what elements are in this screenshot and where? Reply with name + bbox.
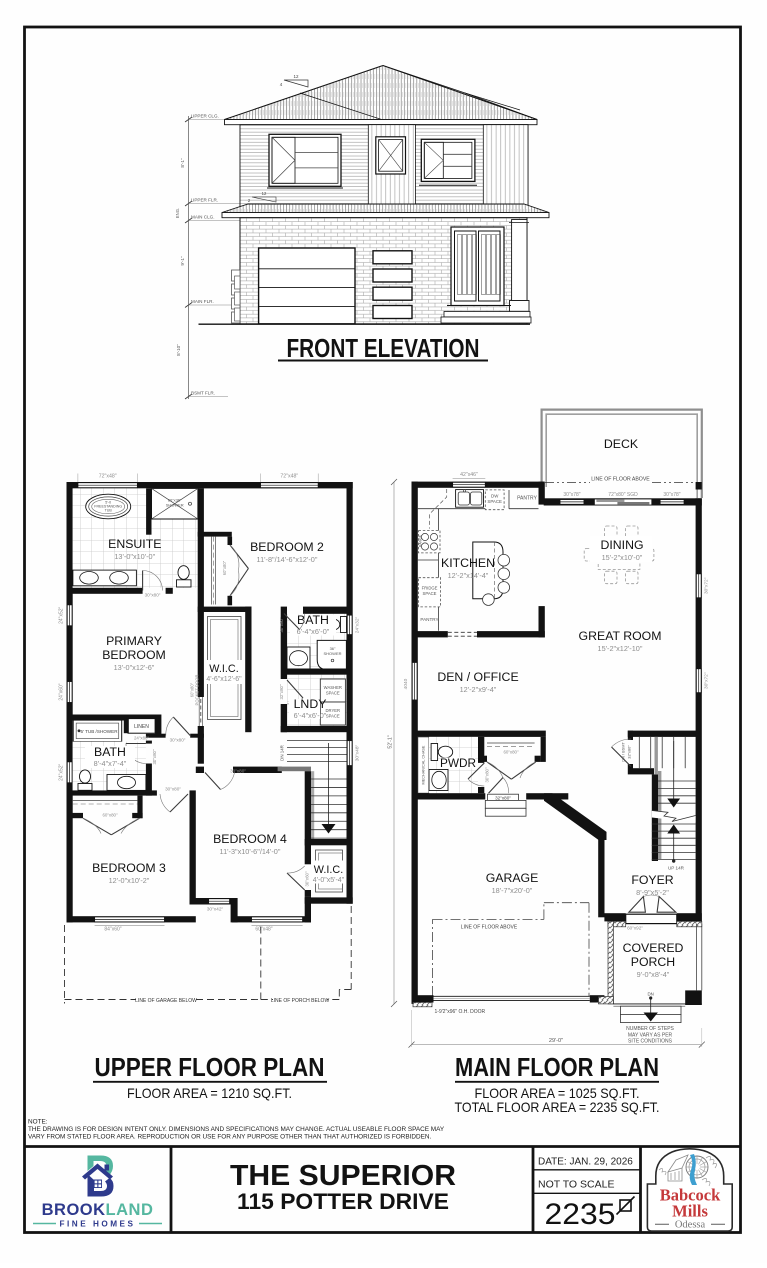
svg-text:8'-9"x5'-2": 8'-9"x5'-2" — [636, 888, 669, 897]
svg-text:BATH: BATH — [94, 745, 126, 759]
svg-text:THE DRAWING IS FOR DESIGN INTE: THE DRAWING IS FOR DESIGN INTENT ONLY. D… — [28, 1126, 445, 1133]
svg-text:MECHANICAL CHASE: MECHANICAL CHASE — [422, 745, 426, 784]
svg-text:11'-8"/14'-6"x12'-0": 11'-8"/14'-6"x12'-0" — [257, 555, 318, 564]
svg-text:SHOWER: SHOWER — [324, 651, 342, 656]
svg-text:12: 12 — [293, 74, 299, 79]
svg-text:FRONT ELEVATION: FRONT ELEVATION — [287, 335, 480, 363]
svg-text:12'-0"x10'-2": 12'-0"x10'-2" — [109, 876, 150, 885]
svg-text:8'-1": 8'-1" — [180, 158, 185, 168]
svg-text:NUMBER OF STEPS: NUMBER OF STEPS — [626, 1026, 674, 1032]
svg-text:MAIN FLR.: MAIN FLR. — [191, 299, 214, 304]
svg-text:60"x80": 60"x80" — [102, 813, 118, 818]
svg-text:15'-2"x12'-10": 15'-2"x12'-10" — [598, 644, 643, 653]
svg-text:MAIN CLG.: MAIN CLG. — [191, 215, 214, 220]
svg-text:COVERED: COVERED — [623, 941, 684, 955]
svg-text:DN: DN — [648, 992, 654, 997]
svg-text:30"x48": 30"x48" — [355, 744, 361, 761]
svg-text:6'-4"x6'-0": 6'-4"x6'-0" — [297, 627, 330, 636]
svg-text:W.I.C.: W.I.C. — [314, 864, 343, 876]
svg-text:18'-7"x20'-0": 18'-7"x20'-0" — [492, 886, 533, 895]
svg-text:MAIN FLOOR PLAN: MAIN FLOOR PLAN — [455, 1052, 659, 1082]
svg-text:DW: DW — [491, 494, 499, 499]
svg-text:60"x48": 60"x48" — [255, 927, 272, 933]
svg-text:SPACE: SPACE — [423, 591, 437, 596]
svg-text:24"x52": 24"x52" — [59, 606, 65, 623]
svg-text:30"x78": 30"x78" — [663, 492, 680, 498]
svg-text:8'-10": 8'-10" — [176, 344, 181, 356]
svg-text:FLOOR AREA = 1210 SQ.FT.: FLOOR AREA = 1210 SQ.FT. — [127, 1085, 292, 1101]
svg-text:SPACE: SPACE — [326, 714, 340, 719]
svg-text:24"x32": 24"x32" — [355, 616, 361, 633]
svg-text:BEDROOM 3: BEDROOM 3 — [92, 861, 166, 875]
svg-text:PORCH: PORCH — [631, 955, 675, 969]
svg-text:PANTRY: PANTRY — [420, 617, 438, 622]
svg-text:LNDY: LNDY — [294, 697, 327, 711]
svg-text:1-9'2"x96" O.H. DOOR: 1-9'2"x96" O.H. DOOR — [435, 1009, 486, 1015]
svg-text:6'-4"x6'-0": 6'-4"x6'-0" — [294, 711, 327, 720]
svg-text:PANTRY: PANTRY — [517, 496, 537, 502]
svg-text:115 POTTER DRIVE: 115 POTTER DRIVE — [237, 1189, 449, 1214]
svg-text:DINING: DINING — [600, 538, 643, 552]
svg-text:WASHER: WASHER — [324, 685, 342, 690]
svg-text:30"x80": 30"x80" — [170, 738, 186, 743]
svg-text:ENG.: ENG. — [175, 208, 180, 218]
svg-text:UPPER CLG.: UPPER CLG. — [191, 114, 219, 119]
svg-text:W.I.C.: W.I.C. — [209, 663, 238, 675]
svg-text:PRIMARY: PRIMARY — [106, 634, 162, 648]
svg-text:30"x78": 30"x78" — [563, 492, 580, 498]
svg-text:42"x46": 42"x46" — [460, 472, 478, 478]
svg-text:LINE OF FLOOR ABOVE: LINE OF FLOOR ABOVE — [591, 477, 650, 483]
svg-text:4'-6"x12'-6": 4'-6"x12'-6" — [206, 676, 242, 683]
svg-text:9'-0"x8'-4": 9'-0"x8'-4" — [637, 970, 670, 979]
svg-text:13'-0"x12'-6": 13'-0"x12'-6" — [114, 663, 155, 672]
svg-text:52'-1": 52'-1" — [388, 735, 394, 748]
svg-text:15'-2"x10'-0": 15'-2"x10'-0" — [602, 553, 643, 562]
svg-text:BEDROOM: BEDROOM — [102, 648, 166, 662]
svg-text:BEDROOM 4: BEDROOM 4 — [213, 832, 287, 846]
svg-text:BROOKLAND: BROOKLAND — [42, 1201, 154, 1219]
svg-text:32"x80": 32"x80" — [495, 795, 511, 800]
svg-text:12: 12 — [262, 191, 267, 196]
svg-text:32"x80": 32"x80" — [627, 745, 632, 759]
svg-text:GREAT ROOM: GREAT ROOM — [579, 629, 662, 643]
svg-text:DECK: DECK — [604, 437, 639, 451]
svg-text:VARY FROM STATED FLOOR AREA. R: VARY FROM STATED FLOOR AREA. REPRODUCTIO… — [28, 1134, 431, 1141]
svg-text:NOT TO SCALE: NOT TO SCALE — [538, 1179, 614, 1191]
svg-text:BEDROOM 2: BEDROOM 2 — [250, 540, 324, 554]
svg-text:LINE OF GARAGE BELOW: LINE OF GARAGE BELOW — [135, 998, 197, 1004]
svg-text:2235: 2235 — [545, 1198, 616, 1231]
svg-text:FRIDGE: FRIDGE — [422, 586, 438, 591]
svg-text:8'-4"x7'-4": 8'-4"x7'-4" — [94, 759, 127, 768]
svg-text:72"x48": 72"x48" — [99, 474, 117, 480]
svg-text:PWDR: PWDR — [440, 756, 476, 770]
svg-text:11'-3"x10'-6"/14'-0": 11'-3"x10'-6"/14'-0" — [220, 847, 281, 856]
svg-text:FOYER: FOYER — [631, 873, 673, 887]
svg-text:84"x60": 84"x60" — [104, 927, 121, 933]
svg-text:Odessa: Odessa — [675, 1220, 706, 1231]
svg-text:DN 14R: DN 14R — [280, 745, 285, 761]
svg-text:30"x80": 30"x80" — [152, 749, 157, 765]
svg-text:5' TUB /SHOWER: 5' TUB /SHOWER — [80, 729, 118, 734]
svg-text:UP 14R: UP 14R — [668, 866, 685, 871]
svg-text:9'-1": 9'-1" — [180, 256, 185, 266]
svg-text:LINE OF FLOOR ABOVE: LINE OF FLOOR ABOVE — [461, 925, 518, 931]
svg-text:LINE OF PORCH BELOW: LINE OF PORCH BELOW — [271, 998, 330, 1004]
svg-text:SPACE: SPACE — [487, 499, 502, 504]
svg-text:72"x80" SGD: 72"x80" SGD — [608, 492, 638, 498]
svg-text:30"x80": 30"x80" — [230, 769, 246, 774]
svg-text:24"x52": 24"x52" — [59, 763, 65, 780]
svg-text:29'-0": 29'-0" — [549, 1038, 563, 1044]
svg-text:60"x80": 60"x80" — [503, 750, 519, 755]
svg-text:BSMT FLR.: BSMT FLR. — [191, 391, 215, 396]
svg-text:DRYER: DRYER — [326, 708, 341, 713]
svg-text:72"x48": 72"x48" — [280, 474, 298, 480]
svg-text:MAY VARY AS PER: MAY VARY AS PER — [628, 1032, 673, 1038]
svg-text:4040: 4040 — [403, 678, 409, 689]
svg-text:SITE CONDITIONS: SITE CONDITIONS — [628, 1039, 673, 1045]
svg-text:60"x80": 60"x80" — [222, 560, 227, 575]
svg-text:RANGE: RANGE — [419, 534, 423, 547]
svg-text:POCKET DOOR: POCKET DOOR — [195, 675, 200, 706]
svg-text:30"x80": 30"x80" — [165, 787, 181, 792]
svg-text:30"x60": 30"x60" — [305, 871, 310, 887]
svg-text:30"x80": 30"x80" — [485, 767, 490, 783]
svg-text:THE SUPERIOR: THE SUPERIOR — [230, 1160, 456, 1192]
svg-text:NOTE:: NOTE: — [28, 1119, 48, 1126]
svg-text:TUB: TUB — [105, 509, 113, 513]
svg-text:ENSUITE: ENSUITE — [108, 537, 161, 551]
svg-text:BATH: BATH — [297, 613, 329, 627]
svg-text:TOTAL FLOOR AREA = 2235 SQ.FT.: TOTAL FLOOR AREA = 2235 SQ.FT. — [455, 1099, 660, 1115]
svg-text:DEN / OFFICE: DEN / OFFICE — [437, 670, 518, 684]
svg-text:13'-0"x10'-0": 13'-0"x10'-0" — [114, 552, 155, 561]
svg-text:12'-2"x14'-4": 12'-2"x14'-4" — [448, 571, 489, 580]
svg-text:SHOWER: SHOWER — [166, 503, 184, 508]
svg-text:30"x72": 30"x72" — [704, 577, 710, 594]
svg-text:Mills: Mills — [672, 1202, 708, 1221]
svg-text:GARAGE: GARAGE — [486, 871, 539, 885]
svg-text:32"x80": 32"x80" — [279, 684, 284, 700]
svg-text:12'-2"x9'-4": 12'-2"x9'-4" — [460, 685, 497, 694]
svg-text:FINE HOMES: FINE HOMES — [60, 1220, 136, 1229]
svg-text:30"x80": 30"x80" — [279, 617, 284, 633]
svg-text:UPPER FLR.: UPPER FLR. — [191, 198, 218, 203]
svg-text:24"x60": 24"x60" — [59, 683, 65, 700]
svg-text:UPPER FLOOR PLAN: UPPER FLOOR PLAN — [95, 1052, 325, 1082]
svg-text:30"x72": 30"x72" — [704, 672, 710, 689]
svg-text:30"x80": 30"x80" — [145, 593, 161, 598]
svg-text:DATE: JAN. 29, 2026: DATE: JAN. 29, 2026 — [538, 1157, 633, 1168]
svg-text:30"x42": 30"x42" — [207, 907, 224, 913]
svg-text:SPACE: SPACE — [326, 691, 340, 696]
svg-text:KITCHEN: KITCHEN — [441, 556, 495, 570]
svg-text:4'-0"x5'-4": 4'-0"x5'-4" — [313, 877, 345, 884]
svg-text:60"x92": 60"x92" — [627, 926, 643, 931]
svg-text:LINEN: LINEN — [134, 724, 149, 730]
svg-text:24"x80": 24"x80" — [134, 736, 150, 741]
svg-text:DN / BSMT: DN / BSMT — [621, 742, 626, 762]
